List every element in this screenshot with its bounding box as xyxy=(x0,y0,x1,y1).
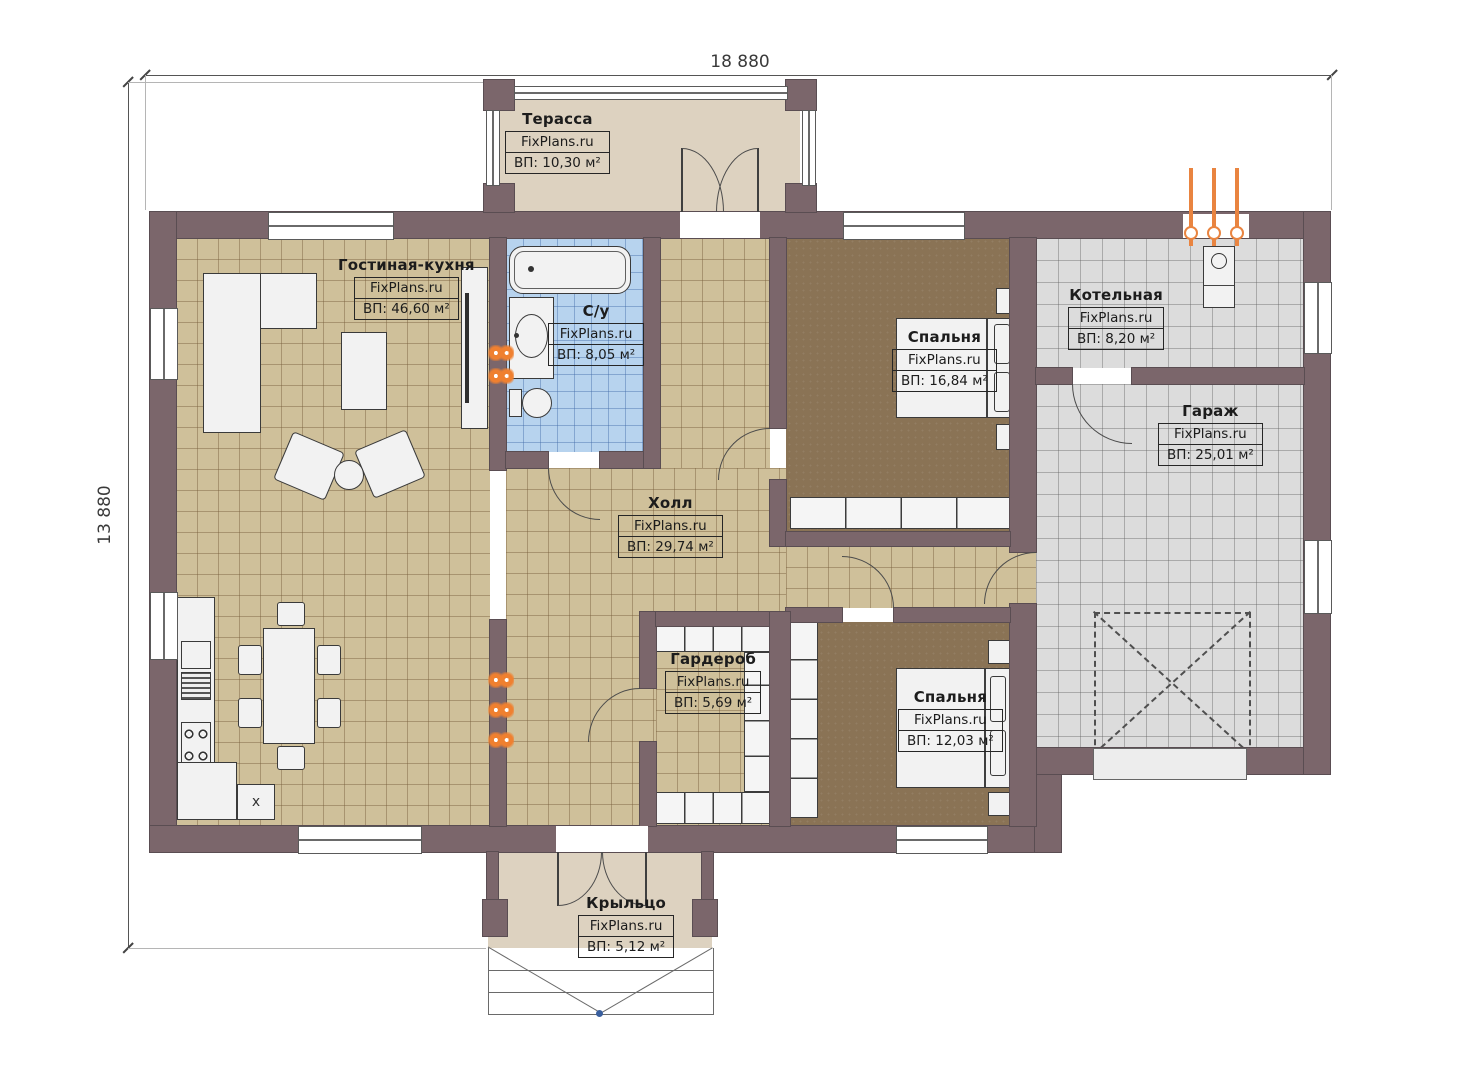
bedroom-1-west-wall-b xyxy=(770,480,786,546)
radiator xyxy=(488,702,514,718)
porch-door-opening xyxy=(556,826,648,852)
boiler-dial xyxy=(1211,253,1227,269)
bedroom-2-east-wall xyxy=(1010,604,1036,826)
terrace-door-opening xyxy=(680,212,760,238)
dining-chair xyxy=(277,602,305,626)
label-box: FixPlans.ru ВП: 12,03 м² xyxy=(898,709,1003,752)
terrace-pillar xyxy=(484,184,514,212)
room-area: ВП: 25,01 м² xyxy=(1159,445,1262,465)
room-area: ВП: 10,30 м² xyxy=(506,153,609,173)
bathroom-east-wall xyxy=(644,238,660,468)
dining-table xyxy=(263,628,315,744)
nightstand xyxy=(988,792,1012,816)
room-name: Холл xyxy=(648,494,693,512)
kitchen-sink xyxy=(181,641,211,669)
bedroom-1-east-wall xyxy=(1010,238,1036,552)
label-box: FixPlans.ru ВП: 25,01 м² xyxy=(1158,423,1263,466)
brand-watermark: FixPlans.ru xyxy=(355,278,458,299)
dining-chair xyxy=(238,645,262,675)
room-name: Спальня xyxy=(914,688,987,706)
pipe-valve xyxy=(1230,226,1244,240)
extension-line xyxy=(1331,75,1332,210)
brand-watermark: FixPlans.ru xyxy=(893,350,996,371)
label-box: FixPlans.ru ВП: 29,74 м² xyxy=(618,515,723,558)
room-name: Спальня xyxy=(908,328,981,346)
label-box: FixPlans.ru ВП: 5,12 м² xyxy=(578,915,674,958)
radiator xyxy=(488,368,514,384)
room-name: Терасса xyxy=(522,110,593,128)
window xyxy=(1304,540,1332,614)
brand-watermark: FixPlans.ru xyxy=(666,672,760,693)
bathtub-faucet xyxy=(528,266,534,272)
room-label-garage: Гараж FixPlans.ru ВП: 25,01 м² xyxy=(1158,402,1263,466)
radiator xyxy=(488,732,514,748)
room-label-bedroom-2: Спальня FixPlans.ru ВП: 12,03 м² xyxy=(898,688,1003,752)
room-area: ВП: 5,69 м² xyxy=(666,693,760,713)
coffee-table xyxy=(341,332,387,410)
room-area: ВП: 16,84 м² xyxy=(893,371,996,391)
room-label-porch: Крыльцо FixPlans.ru ВП: 5,12 м² xyxy=(578,894,674,958)
porch-pillar xyxy=(483,900,507,936)
porch-pillar xyxy=(693,900,717,936)
pipe-valve xyxy=(1207,226,1221,240)
extension-line xyxy=(145,75,146,210)
terrace-railing-window xyxy=(486,110,500,186)
room-name: Гостиная-кухня xyxy=(338,256,475,274)
closet xyxy=(790,497,1010,529)
stairs-marker-dot xyxy=(596,1010,603,1017)
label-box: FixPlans.ru ВП: 5,69 м² xyxy=(665,671,761,714)
pipe-valve xyxy=(1184,226,1198,240)
room-area: ВП: 46,60 м² xyxy=(355,299,458,319)
room-label-hall: Холл FixPlans.ru ВП: 29,74 м² xyxy=(618,494,723,558)
label-box: FixPlans.ru ВП: 16,84 м² xyxy=(892,349,997,392)
room-name: Гардероб xyxy=(670,650,756,668)
room-label-wardrobe: Гардероб FixPlans.ru ВП: 5,69 м² xyxy=(665,650,761,714)
label-box: FixPlans.ru ВП: 8,05 м² xyxy=(548,323,644,366)
room-name: Гараж xyxy=(1182,402,1238,420)
kitchen-corner-counter xyxy=(177,762,237,820)
label-box: FixPlans.ru ВП: 10,30 м² xyxy=(505,131,610,174)
brand-watermark: FixPlans.ru xyxy=(506,132,609,153)
corridor-south-wall-a xyxy=(786,608,842,622)
kitchen-appliance-label: x xyxy=(252,794,260,810)
wardrobe-shelf xyxy=(656,626,770,652)
extension-line xyxy=(128,82,486,83)
toilet-bowl xyxy=(522,388,552,418)
label-box: FixPlans.ru ВП: 8,20 м² xyxy=(1068,307,1164,350)
label-box: FixPlans.ru ВП: 46,60 м² xyxy=(354,277,459,320)
room-label-living-kitchen: Гостиная-кухня FixPlans.ru ВП: 46,60 м² xyxy=(338,256,475,320)
sink-basin xyxy=(515,314,548,358)
room-name: С/у xyxy=(583,302,610,320)
bedroom-1-west-wall-a xyxy=(770,238,786,428)
terrace-railing-window xyxy=(514,86,788,100)
floor-plan: 18 880 13 880 xyxy=(0,0,1473,1080)
dimension-line-top xyxy=(145,75,1332,76)
room-area: ВП: 8,05 м² xyxy=(549,345,643,365)
dimension-height-label: 13 880 xyxy=(95,470,115,560)
boiler-garage-wall-a xyxy=(1036,368,1072,384)
room-area: ВП: 5,12 м² xyxy=(579,937,673,957)
room-label-boiler-room: Котельная FixPlans.ru ВП: 8,20 м² xyxy=(1068,286,1164,350)
wardrobe-west-wall-a xyxy=(640,612,656,688)
room-area: ВП: 12,03 м² xyxy=(899,731,1002,751)
room-name: Крыльцо xyxy=(586,894,666,912)
brand-watermark: FixPlans.ru xyxy=(1159,424,1262,445)
room-label-bathroom: С/у FixPlans.ru ВП: 8,05 м² xyxy=(548,302,644,366)
room-name: Котельная xyxy=(1069,286,1163,304)
bathroom-south-wall-a xyxy=(506,452,548,468)
room-label-terrace: Терасса FixPlans.ru ВП: 10,30 м² xyxy=(505,110,610,174)
terrace-pillar xyxy=(786,80,816,110)
window xyxy=(150,308,178,380)
terrace-railing-window xyxy=(802,110,816,186)
kitchen-dishwasher xyxy=(181,672,211,700)
brand-watermark: FixPlans.ru xyxy=(549,324,643,345)
window xyxy=(896,826,988,854)
sofa xyxy=(203,273,261,433)
dimension-width-label: 18 880 xyxy=(700,52,780,72)
nightstand xyxy=(988,640,1012,664)
extension-line xyxy=(128,948,486,949)
room-label-bedroom-1: Спальня FixPlans.ru ВП: 16,84 м² xyxy=(892,328,997,392)
side-table-round xyxy=(334,460,364,490)
boiler-garage-wall-b xyxy=(1132,368,1304,384)
window xyxy=(150,592,178,660)
window xyxy=(298,826,422,854)
wardrobe-shelf xyxy=(656,792,770,824)
wardrobe-east-wall xyxy=(770,612,790,826)
brand-watermark: FixPlans.ru xyxy=(1069,308,1163,329)
dining-chair xyxy=(238,698,262,728)
terrace-pillar xyxy=(786,184,816,212)
wardrobe-north-wall xyxy=(656,612,770,626)
boiler-unit xyxy=(1203,246,1235,308)
terrace-pillar xyxy=(484,80,514,110)
brand-watermark: FixPlans.ru xyxy=(579,916,673,937)
room-area: ВП: 29,74 м² xyxy=(619,537,722,557)
brand-watermark: FixPlans.ru xyxy=(899,710,1002,731)
corridor-north-wall xyxy=(786,532,1010,546)
porch-stairs xyxy=(488,948,714,1015)
sink-faucet xyxy=(514,333,519,338)
window xyxy=(843,212,965,240)
closet xyxy=(790,622,818,818)
brand-watermark: FixPlans.ru xyxy=(619,516,722,537)
kitchen-appliance-box: x xyxy=(237,784,275,820)
room-area: ВП: 8,20 м² xyxy=(1069,329,1163,349)
window xyxy=(1304,282,1332,354)
dining-chair xyxy=(317,645,341,675)
dining-chair xyxy=(317,698,341,728)
radiator xyxy=(488,672,514,688)
window xyxy=(268,212,394,240)
garage-door xyxy=(1093,748,1247,780)
living-hall-wall xyxy=(490,620,506,826)
wardrobe-west-wall-b xyxy=(640,742,656,826)
corridor-south-wall-b xyxy=(894,608,1010,622)
dimension-line-left xyxy=(128,82,129,948)
radiator xyxy=(488,345,514,361)
dining-chair xyxy=(277,746,305,770)
toilet-tank xyxy=(509,389,522,417)
